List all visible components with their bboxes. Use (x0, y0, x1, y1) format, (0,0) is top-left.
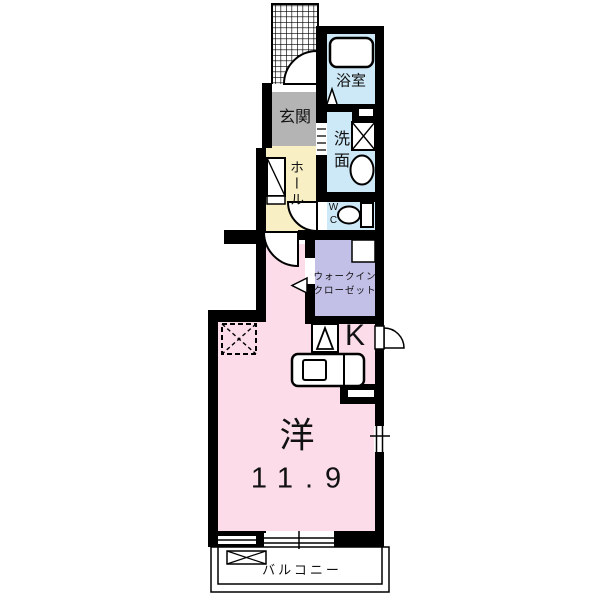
closet-label-line1: ウォークイン (313, 272, 376, 282)
kitchen-counter (292, 354, 364, 386)
pipe-space-slot (348, 390, 374, 397)
side-window-opening (374, 426, 385, 452)
hall-label: ホール (290, 160, 304, 208)
wall-wash-wc (316, 192, 384, 202)
floorplan: 玄関 ホール 浴室 洗面 WC ウォークイン クローゼット K 洋 11.9 バ… (0, 0, 600, 600)
balcony-label: バルコニー (262, 564, 342, 577)
wall-room-left (208, 310, 218, 547)
room-size-label: 11.9 (251, 465, 353, 494)
wc-label: WC (328, 202, 338, 228)
wall-closet-left-upper (305, 240, 315, 258)
floorplan-drawing (0, 0, 600, 600)
wall-corridor-left (256, 244, 266, 310)
washbasin (351, 156, 374, 185)
wall-stub-left (224, 230, 266, 244)
kitchen-exterior-door (375, 326, 404, 349)
kitchen-label: K (345, 321, 365, 351)
genkan-label: 玄関 (279, 110, 311, 126)
shoe-cabinet (267, 158, 285, 204)
washroom-folding-door (316, 123, 327, 155)
bathroom-label: 浴室 (336, 74, 366, 89)
closet-corner-notch (352, 240, 375, 262)
wall-bottom-right (334, 531, 384, 547)
bathtub (330, 38, 373, 67)
washroom-label: 洗面 (331, 130, 347, 174)
closet-label-line2: クローゼット (313, 286, 376, 296)
wash-block-vent (359, 109, 373, 116)
room-type-label: 洋 (279, 419, 314, 454)
wall-top (318, 26, 384, 34)
wall-hall-left (256, 148, 266, 232)
water-heater (312, 324, 338, 352)
washing-machine-pan (352, 122, 375, 150)
balcony-unit-box (227, 551, 266, 564)
wall-wc-closet (298, 230, 384, 240)
wall-genkan-left (262, 83, 272, 148)
entry-step (272, 84, 317, 92)
